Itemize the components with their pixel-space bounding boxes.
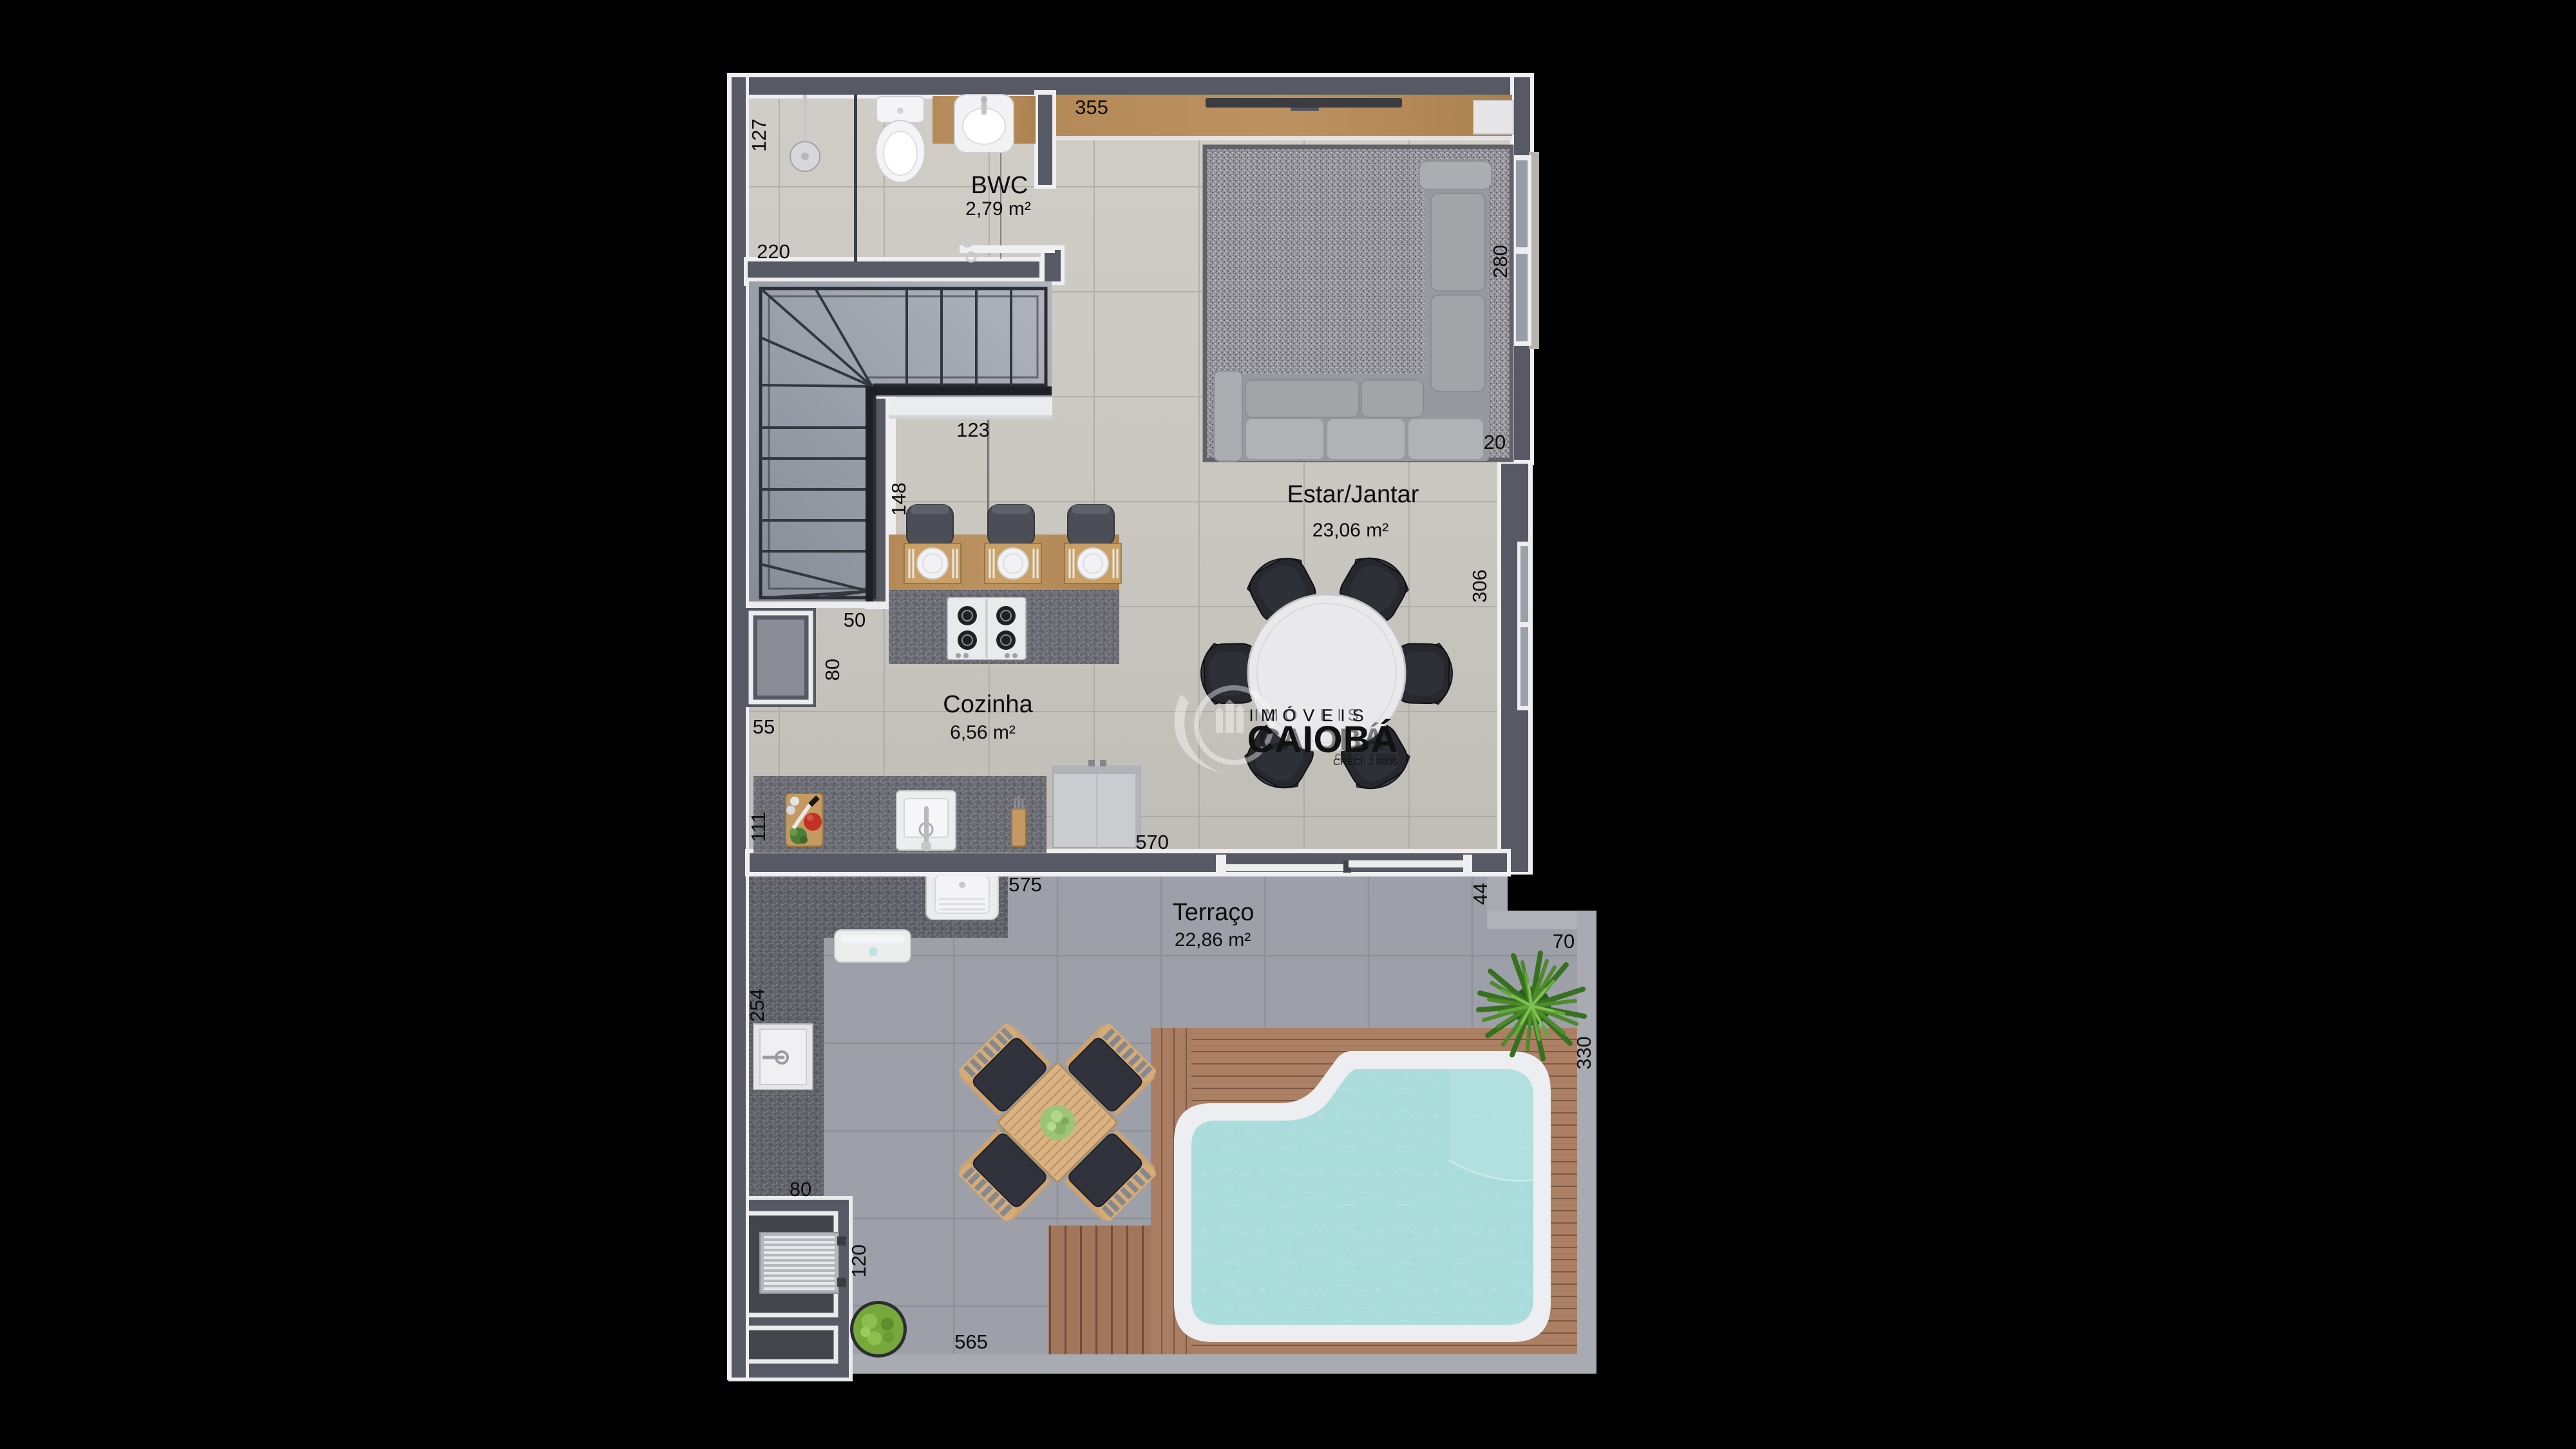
svg-text:2,79 m²: 2,79 m² xyxy=(965,198,1031,220)
svg-text:280: 280 xyxy=(1489,245,1511,278)
svg-text:220: 220 xyxy=(757,240,790,263)
svg-text:355: 355 xyxy=(1075,96,1108,118)
svg-text:Estar/Jantar: Estar/Jantar xyxy=(1287,481,1419,508)
svg-text:BWC: BWC xyxy=(971,172,1028,199)
svg-text:CRECI: J 8806: CRECI: J 8806 xyxy=(1333,757,1397,768)
svg-text:23,06 m²: 23,06 m² xyxy=(1312,520,1388,541)
svg-text:55: 55 xyxy=(753,715,775,738)
svg-text:Terraço: Terraço xyxy=(1173,899,1255,926)
svg-text:570: 570 xyxy=(1135,831,1169,853)
svg-text:565: 565 xyxy=(954,1331,988,1353)
svg-text:575: 575 xyxy=(1009,873,1042,896)
svg-text:123: 123 xyxy=(956,419,990,441)
svg-text:80: 80 xyxy=(790,1178,811,1200)
svg-text:127: 127 xyxy=(748,118,770,152)
svg-text:6,56 m²: 6,56 m² xyxy=(950,722,1016,743)
svg-text:70: 70 xyxy=(1553,930,1575,952)
svg-text:111: 111 xyxy=(747,811,770,842)
svg-text:120: 120 xyxy=(848,1244,870,1278)
svg-text:306: 306 xyxy=(1468,569,1491,603)
svg-text:22,86 m²: 22,86 m² xyxy=(1175,929,1251,951)
svg-text:148: 148 xyxy=(887,482,910,516)
svg-text:20: 20 xyxy=(1484,431,1506,453)
svg-text:80: 80 xyxy=(821,659,844,681)
svg-text:CAIOBÁ: CAIOBÁ xyxy=(1247,719,1399,761)
svg-text:330: 330 xyxy=(1573,1036,1595,1070)
svg-text:Cozinha: Cozinha xyxy=(943,691,1033,718)
svg-text:50: 50 xyxy=(844,609,866,631)
svg-text:44: 44 xyxy=(1469,883,1492,905)
svg-text:254: 254 xyxy=(746,989,768,1022)
